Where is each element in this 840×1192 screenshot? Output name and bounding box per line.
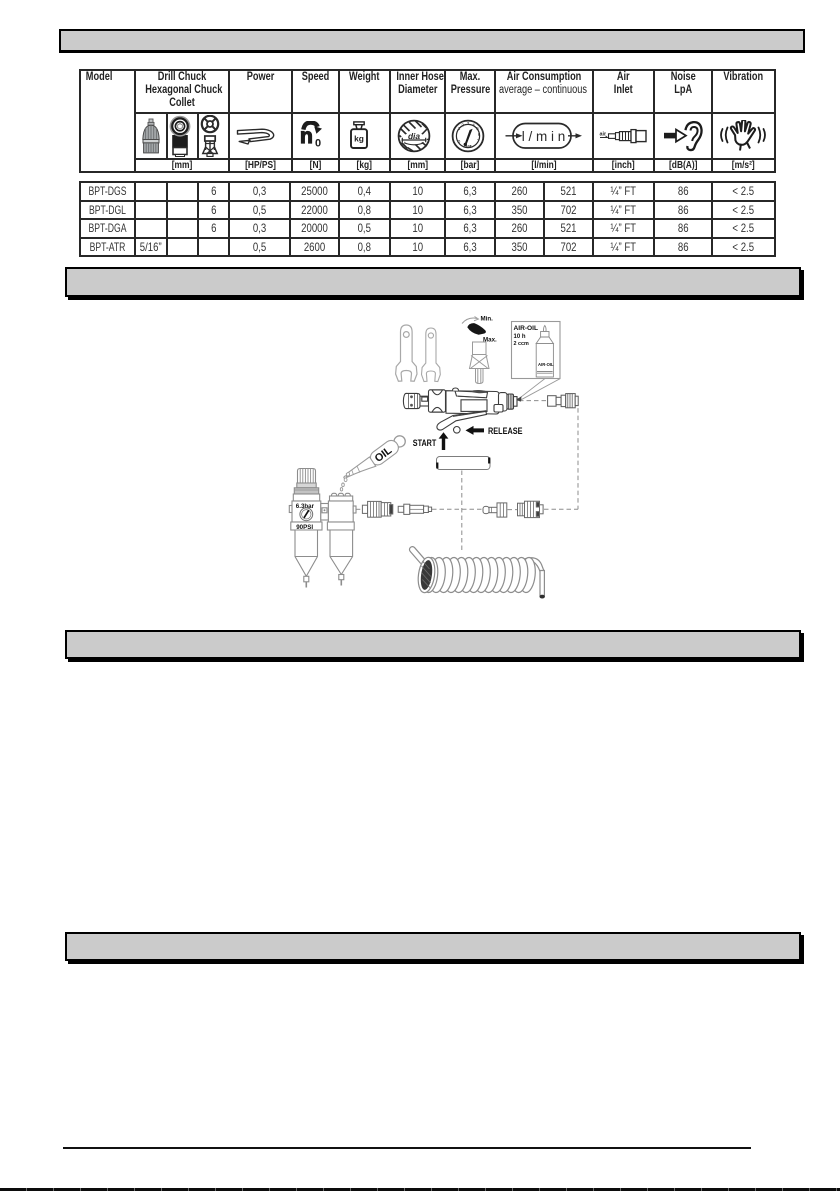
svg-text:l / m i n: l / m i n xyxy=(522,129,566,144)
svg-text:2: 2 xyxy=(461,123,464,128)
svg-text:kg: kg xyxy=(354,134,364,144)
svg-text:0: 0 xyxy=(315,138,321,148)
svg-text:5: 5 xyxy=(476,126,479,131)
svg-text:4: 4 xyxy=(472,123,475,128)
svg-text:7: 7 xyxy=(477,139,480,144)
svg-text:0: 0 xyxy=(458,139,461,144)
svg-text:Min.: Min. xyxy=(481,316,494,323)
svg-text:dia: dia xyxy=(408,131,420,141)
svg-text:3: 3 xyxy=(467,121,470,126)
svg-text:START: START xyxy=(413,437,437,448)
svg-text:6: 6 xyxy=(478,132,481,137)
svg-text:90PSI: 90PSI xyxy=(296,524,313,531)
svg-text:RELEASE: RELEASE xyxy=(488,425,523,436)
svg-text:10 h: 10 h xyxy=(514,334,526,340)
svg-text:AIR-OIL: AIR-OIL xyxy=(514,325,539,332)
svg-text:AIR-OIL: AIR-OIL xyxy=(538,362,554,367)
svg-text:2 ccm: 2 ccm xyxy=(514,341,529,347)
